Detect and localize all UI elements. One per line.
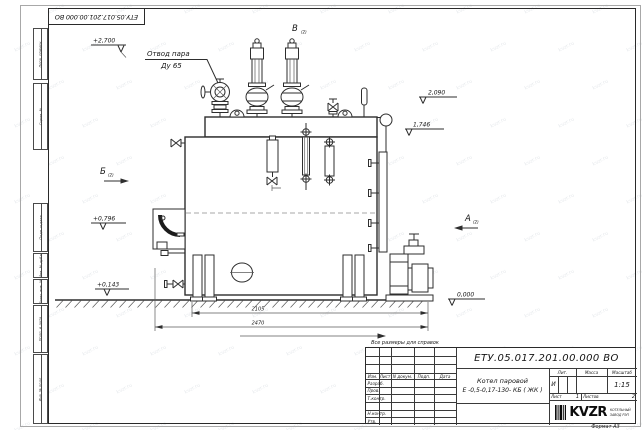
- sheets-cell: Листов 2: [581, 393, 637, 400]
- scale-value: 1:15: [607, 376, 637, 393]
- product-name-line2: Е -0,5-0,17-130- КБ ( ЖК ): [462, 386, 542, 396]
- grid-line: [558, 376, 559, 393]
- elevation-label: +0,143: [97, 282, 119, 289]
- view-v-label: В: [292, 24, 298, 34]
- lifting-lug-right: [338, 110, 352, 117]
- elevation-label: 1,746: [413, 122, 430, 129]
- dim-outer-label: 2470: [252, 321, 265, 327]
- elevation-label: +2,700: [93, 38, 115, 45]
- view-a-label: А: [464, 214, 471, 224]
- reference-note: Все размеры для справок: [240, 333, 439, 346]
- view-marker-b: Б (2): [100, 167, 129, 184]
- bottom-left-valve: [165, 280, 186, 288]
- product-name-line1: Котел паровой: [477, 376, 528, 386]
- elevation-label: 2,090: [428, 90, 445, 97]
- view-b-subscript: (2): [108, 173, 114, 178]
- elevation-2700: +2,700: [91, 38, 126, 58]
- company-logo-text: KVZR: [569, 405, 607, 420]
- feed-pump-unit: [386, 234, 433, 301]
- row-blank: [366, 402, 391, 410]
- safety-valve-2: [281, 39, 309, 117]
- steam-outlet-label-2: Ду 65: [160, 62, 182, 70]
- sheet-label: Лист: [551, 394, 562, 399]
- sheet-value: 1: [576, 394, 579, 400]
- small-top-valve: [328, 99, 338, 117]
- format-label: Формат А3: [575, 424, 636, 430]
- sheets-value: 2: [632, 394, 635, 400]
- mass-value: [576, 376, 607, 393]
- grid-line: [456, 403, 549, 404]
- company-barcode-icon: [555, 405, 566, 420]
- company-subtext: КОТЕЛЬНЫЙ ЗАВОД РЭП: [610, 408, 631, 417]
- grid-line: [434, 348, 435, 425]
- steam-outlet-valve: [201, 79, 230, 117]
- dim-inner-label: 2105: [252, 307, 265, 313]
- row-razrab: Разраб.: [366, 379, 391, 387]
- sheets-label: Листов: [583, 394, 599, 399]
- view-a-subscript: (2): [473, 220, 479, 225]
- company-subtext-line2: ЗАВОД РЭП: [610, 413, 631, 417]
- mass-header: Масса: [576, 368, 607, 376]
- ground-line: [55, 300, 432, 308]
- scale-header: Масштаб: [607, 368, 637, 376]
- col-header-data: Дата: [434, 373, 456, 379]
- view-b-label: Б: [100, 167, 106, 177]
- title-block: Изм. Лист N докум. Подп. Дата Разраб. Пр…: [365, 347, 636, 424]
- elevation-2090: 2,090: [419, 90, 457, 104]
- col-header-podp: Подп.: [414, 373, 434, 379]
- elevation-0796: +0,796: [91, 216, 126, 230]
- row-tkontr: Т.контр.: [366, 394, 391, 402]
- grid-line: [414, 348, 415, 425]
- company-cell: KVZR КОТЕЛЬНЫЙ ЗАВОД РЭП: [549, 400, 637, 425]
- boiler-drum: [205, 117, 377, 137]
- grid-line: [567, 376, 568, 393]
- burner-assembly: [153, 209, 185, 256]
- title-block-doc-number: ЕТУ.05.017.201.00.000 ВО: [456, 348, 637, 368]
- left-top-valve: [171, 139, 181, 147]
- row-utv: Утв.: [366, 417, 391, 425]
- grid-line: [391, 348, 392, 425]
- elevation-0143: +0,143: [95, 282, 129, 296]
- steam-outlet-label-1: Отвод пара: [147, 50, 190, 58]
- elevation-1746: 1,746: [405, 122, 444, 136]
- view-marker-v: В (2): [292, 24, 307, 35]
- sheet-cell: Лист 1: [549, 393, 581, 400]
- view-marker-a: А (2): [454, 214, 479, 231]
- row-prov: Пров.: [366, 387, 391, 394]
- safety-valve-1: [246, 39, 274, 117]
- lit-header: Лит.: [549, 368, 576, 376]
- col-header-doc: N докум.: [391, 373, 414, 379]
- elevation-0000: 0,000: [448, 292, 485, 306]
- elevation-label: 0,000: [457, 292, 474, 299]
- lifting-lug-left: [230, 110, 244, 117]
- drawing-sheet: kvzr.rukvzr.rukvzr.rukvzr.rukvzr.rukvzr.…: [0, 0, 644, 430]
- steam-outlet-callout: Отвод пара Ду 65: [145, 50, 218, 83]
- title-block-name: Котел паровой Е -0,5-0,17-130- КБ ( ЖК ): [456, 368, 549, 403]
- elevation-label: +0,796: [93, 216, 115, 223]
- row-nkontr: Н.контр.: [366, 410, 391, 417]
- note-label: Все размеры для справок: [371, 340, 439, 346]
- lit-value: И: [549, 376, 558, 393]
- view-v-subscript: (2): [301, 30, 307, 35]
